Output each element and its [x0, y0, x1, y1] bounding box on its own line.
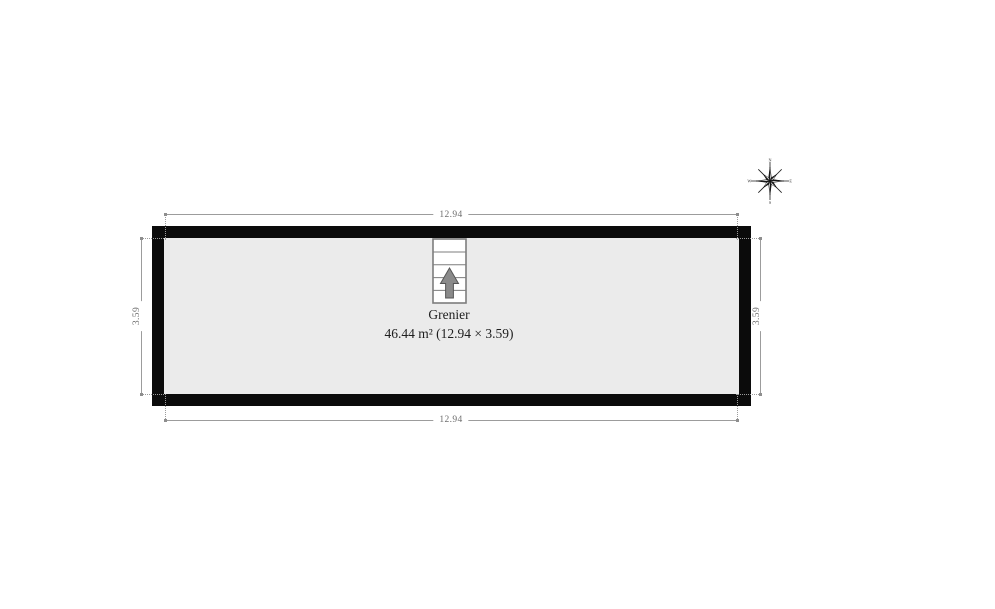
compass-west-label: W	[747, 178, 751, 183]
dimension-extension-line	[141, 238, 166, 239]
dimension-end-marker	[164, 419, 167, 422]
dimension-label-bottom: 12.94	[433, 415, 468, 425]
dimension-end-marker	[164, 213, 167, 216]
dimension-label-top: 12.94	[433, 210, 468, 220]
compass-east-label: E	[789, 178, 792, 183]
floorplan-canvas: 12.94 12.94 3.59 3.59 Grenier 46.44 m² (…	[0, 0, 995, 609]
dimension-end-marker	[759, 393, 762, 396]
compass-south-label: S	[769, 200, 772, 205]
dimension-extension-line	[737, 394, 738, 421]
room-area-label: 46.44 m² (12.94 × 3.59)	[384, 324, 513, 343]
dimension-end-marker	[759, 237, 762, 240]
room-name: Grenier	[384, 305, 513, 324]
stairs-icon[interactable]	[432, 238, 467, 304]
dimension-extension-line	[737, 214, 738, 240]
room-label: Grenier 46.44 m² (12.94 × 3.59)	[384, 305, 513, 343]
dimension-extension-line	[736, 394, 761, 395]
dimension-end-marker	[140, 237, 143, 240]
dimension-end-marker	[140, 393, 143, 396]
dimension-extension-line	[736, 238, 761, 239]
dimension-end-marker	[736, 213, 739, 216]
dimension-end-marker	[736, 419, 739, 422]
compass-rose-icon: N E S W	[746, 157, 794, 205]
dimension-label-left: 3.59	[132, 301, 142, 331]
dimension-extension-line	[165, 214, 166, 240]
dimension-extension-line	[165, 394, 166, 421]
compass-north-label: N	[768, 158, 771, 163]
dimension-extension-line	[141, 394, 166, 395]
dimension-label-right: 3.59	[752, 301, 762, 331]
